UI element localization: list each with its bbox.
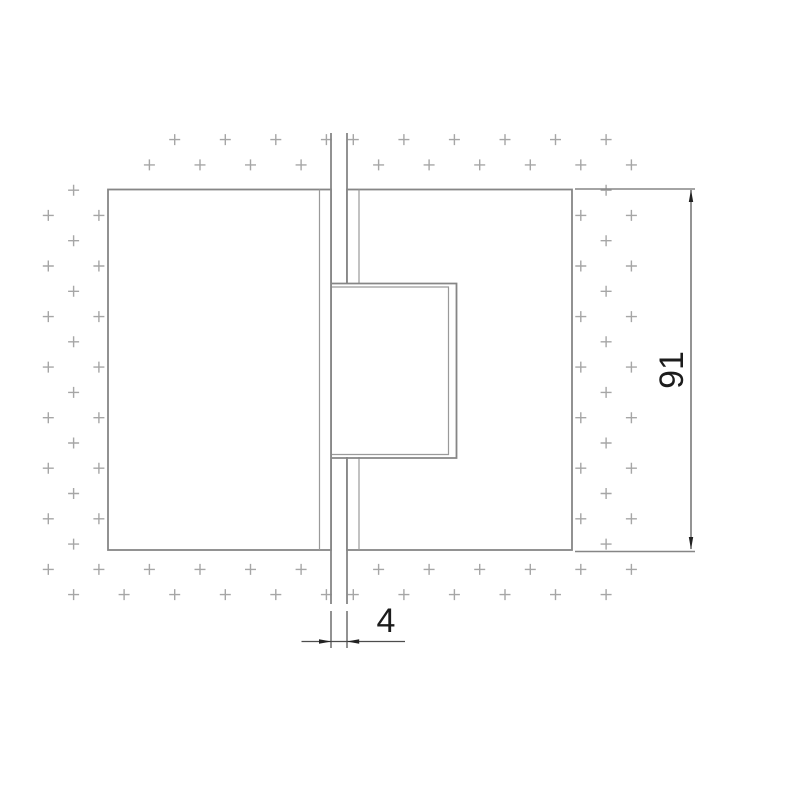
height-dimension: 91 bbox=[575, 189, 695, 552]
height-arrow-down-icon bbox=[689, 537, 693, 550]
hinge-knuckle bbox=[332, 284, 457, 459]
gap-dimension: 4 bbox=[302, 602, 406, 644]
gap-arrow-right-icon bbox=[319, 639, 332, 643]
height-arrow-up-icon bbox=[689, 190, 693, 203]
gap-dimension-label: 4 bbox=[377, 602, 396, 640]
left-plate bbox=[108, 190, 331, 551]
height-dimension-label: 91 bbox=[653, 351, 691, 389]
knuckle-body bbox=[332, 284, 457, 457]
drawing-canvas: 91 4 bbox=[0, 0, 800, 800]
hinge-technical-drawing: 91 4 bbox=[0, 0, 800, 800]
gap-arrow-left-icon bbox=[347, 639, 360, 643]
